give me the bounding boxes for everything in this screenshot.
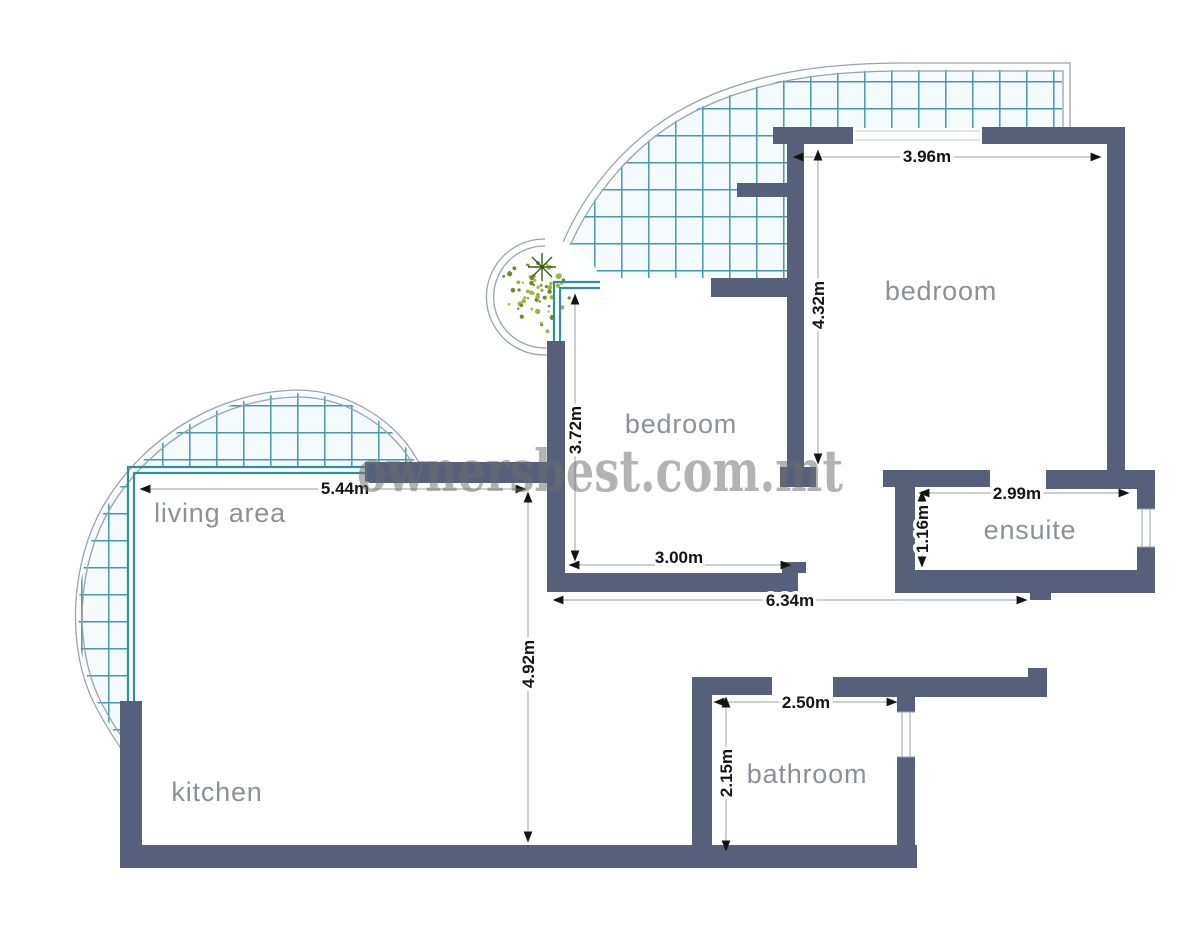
plant-dot bbox=[522, 282, 524, 284]
wall-segment bbox=[120, 701, 142, 868]
dimension-label: 2.15m bbox=[717, 749, 736, 797]
plant-dot bbox=[522, 299, 526, 303]
floor-plan-page: 5.44m 4.92m 3.96m 4.32m 3.72m 3.00m 6.34… bbox=[0, 0, 1200, 942]
wall-segment bbox=[1030, 590, 1051, 600]
plant-dot bbox=[520, 304, 523, 307]
plant-dot bbox=[548, 305, 551, 308]
plant-dot bbox=[543, 296, 547, 300]
plant-dot bbox=[556, 274, 561, 279]
wall-segment bbox=[558, 573, 798, 592]
plant-dot bbox=[540, 284, 543, 287]
terrace-door-lines bbox=[855, 131, 980, 140]
plant-dot bbox=[549, 282, 552, 285]
plant-dot bbox=[539, 300, 541, 302]
wall-segment bbox=[1046, 470, 1155, 489]
plant-dot bbox=[533, 279, 536, 282]
wall-segment bbox=[711, 278, 790, 297]
room-label-bathroom: bathroom bbox=[747, 759, 867, 789]
plant-dot bbox=[530, 308, 533, 311]
wall-segment bbox=[982, 127, 1125, 144]
plant-dot bbox=[518, 288, 521, 291]
plant-dot bbox=[507, 271, 512, 276]
ensuite-window bbox=[1137, 509, 1155, 547]
dimension-label: 3.00m bbox=[655, 548, 703, 567]
room-label-kitchen: kitchen bbox=[171, 777, 262, 807]
wall-segment bbox=[120, 845, 917, 868]
wall-segment bbox=[692, 677, 712, 867]
wall-segment bbox=[833, 677, 1047, 697]
wall-segment bbox=[895, 570, 1155, 593]
plant-dot bbox=[513, 266, 517, 270]
plant-starburst bbox=[528, 253, 556, 281]
plant-dot bbox=[527, 297, 530, 300]
plant-dot bbox=[568, 296, 571, 299]
plant-dot bbox=[535, 309, 540, 314]
plant-dot bbox=[508, 303, 511, 306]
watermark-text: ownersbest.com.mt bbox=[357, 437, 843, 505]
dimension-label: 2.99m bbox=[993, 484, 1041, 503]
plant-dot bbox=[529, 281, 534, 286]
wall-segment bbox=[895, 487, 915, 574]
dimension-label: 4.92m bbox=[519, 640, 538, 688]
room-label-ensuite: ensuite bbox=[984, 515, 1077, 545]
plant-dot bbox=[516, 280, 520, 284]
wall-segment bbox=[737, 183, 790, 197]
plant-dot bbox=[545, 285, 548, 288]
plant-dot bbox=[547, 311, 549, 313]
plant-dot bbox=[540, 322, 543, 325]
dimension-label: 2.50m bbox=[782, 693, 830, 712]
top-terrace-tiles bbox=[566, 70, 1062, 278]
plant-dot bbox=[502, 275, 505, 278]
bathroom-window bbox=[897, 712, 915, 757]
room-label-bedroom-second: bedroom bbox=[625, 409, 737, 439]
plant-dot bbox=[531, 292, 534, 295]
floor-plan: 5.44m 4.92m 3.96m 4.32m 3.72m 3.00m 6.34… bbox=[0, 0, 1200, 942]
wall-segment bbox=[897, 695, 915, 712]
dimension-label: 4.32m bbox=[809, 281, 828, 329]
plant-dot bbox=[545, 329, 549, 333]
plant-dot bbox=[535, 295, 540, 300]
room-label-living-area: living area bbox=[154, 498, 286, 528]
wall-segment bbox=[782, 562, 806, 573]
plant-dot bbox=[523, 296, 526, 299]
wall-segment bbox=[773, 127, 853, 144]
plant-dot bbox=[540, 289, 543, 292]
plant-dot bbox=[547, 290, 551, 294]
dimension-label: 3.96m bbox=[903, 147, 951, 166]
plant-dot bbox=[511, 288, 516, 293]
wall-segment bbox=[1028, 668, 1047, 697]
plant-dot bbox=[536, 286, 539, 289]
dimension-label: 6.34m bbox=[766, 591, 814, 610]
plant-dot bbox=[526, 290, 530, 294]
plant-dot bbox=[526, 264, 528, 266]
plant-dot bbox=[517, 308, 519, 310]
plant-dot bbox=[520, 315, 524, 319]
wall-segment bbox=[1107, 144, 1125, 472]
room-label-bedroom-main: bedroom bbox=[885, 276, 997, 306]
plant-dot bbox=[547, 285, 552, 290]
wall-segment bbox=[883, 470, 990, 487]
dimension-label: 1.16m bbox=[913, 505, 932, 553]
wall-segment bbox=[897, 757, 915, 868]
wall-segment bbox=[1137, 489, 1155, 509]
